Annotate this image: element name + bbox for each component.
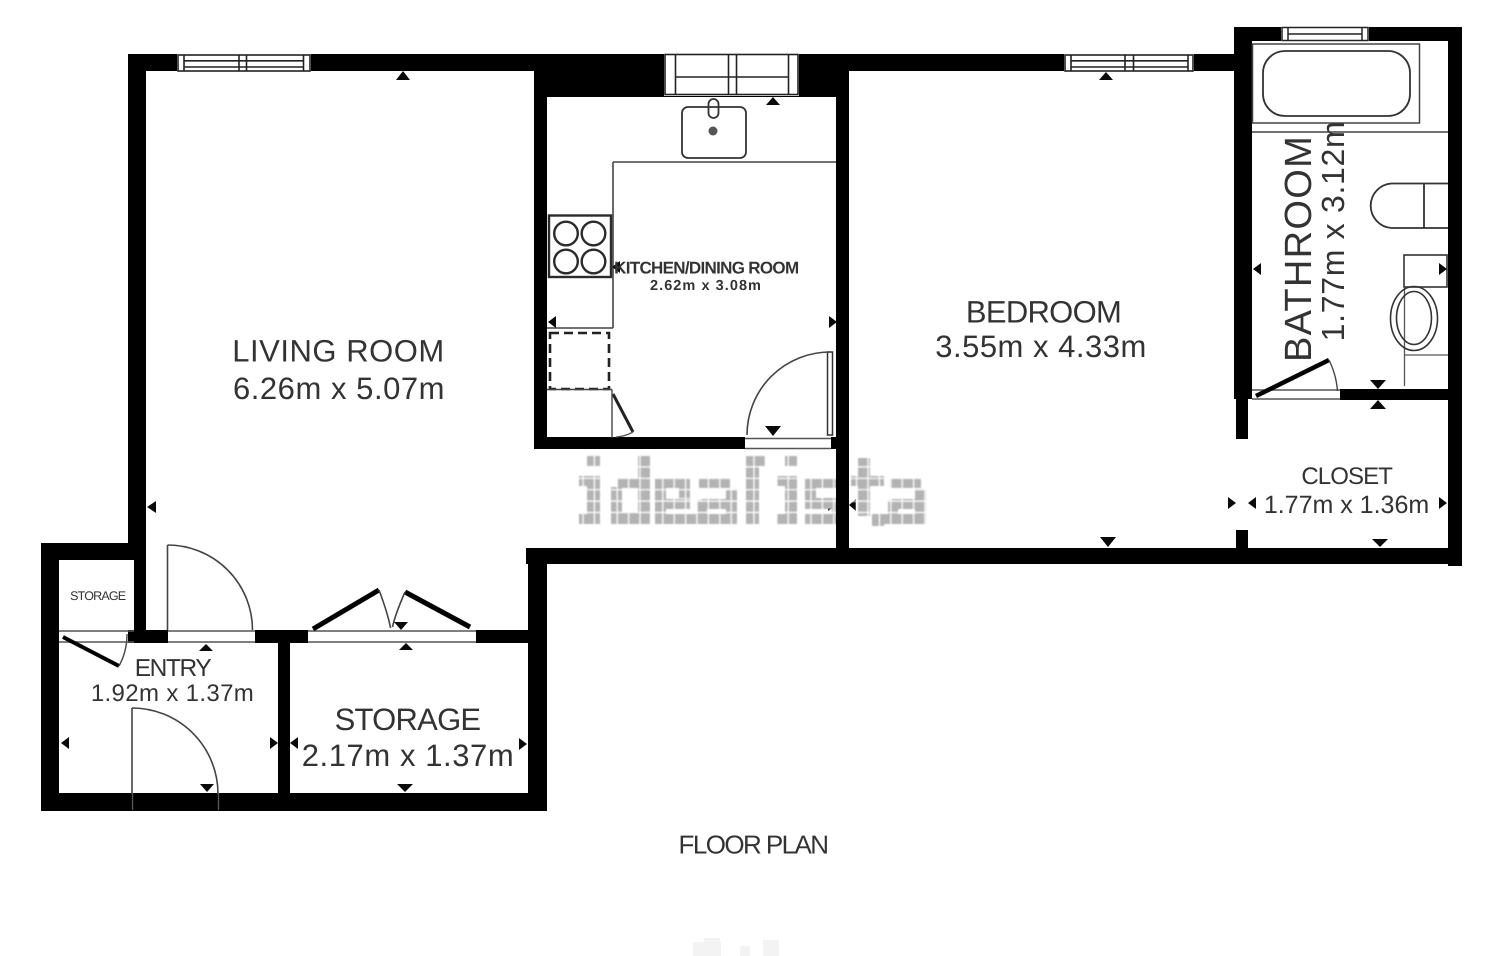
svg-text:2.17m x 1.37m: 2.17m x 1.37m <box>302 738 515 773</box>
svg-text:1.77m x 1.36m: 1.77m x 1.36m <box>1264 491 1429 519</box>
svg-text:STORAGE: STORAGE <box>70 589 126 603</box>
svg-text:6.26m x 5.07m: 6.26m x 5.07m <box>233 371 445 406</box>
svg-text:STORAGE: STORAGE <box>335 702 481 737</box>
svg-text:FLOOR PLAN: FLOOR PLAN <box>679 830 828 860</box>
svg-text:1.92m x 1.37m: 1.92m x 1.37m <box>91 680 254 707</box>
svg-text:1.77m x 3.12m: 1.77m x 3.12m <box>1315 121 1351 342</box>
svg-text:CLOSET: CLOSET <box>1301 463 1393 490</box>
svg-text:BATHROOM: BATHROOM <box>1278 135 1320 362</box>
svg-text:KITCHEN/DINING ROOM: KITCHEN/DINING ROOM <box>614 259 799 278</box>
svg-text:LIVING ROOM: LIVING ROOM <box>232 334 445 369</box>
svg-text:3.55m x 4.33m: 3.55m x 4.33m <box>935 329 1147 364</box>
svg-text:ENTRY: ENTRY <box>135 655 212 682</box>
svg-text:BEDROOM: BEDROOM <box>966 295 1121 330</box>
svg-text:2.62m x 3.08m: 2.62m x 3.08m <box>650 278 762 294</box>
